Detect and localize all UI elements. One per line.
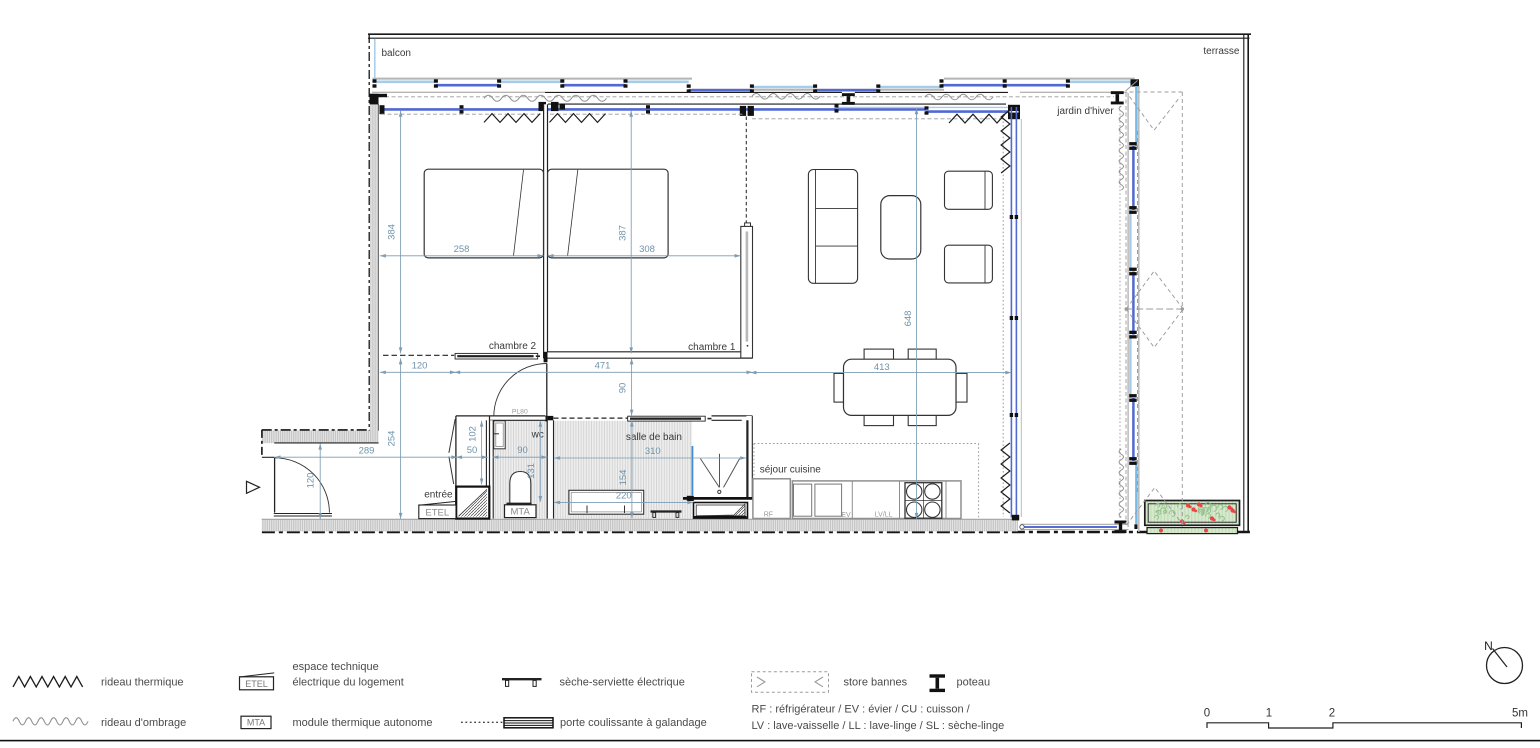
svg-text:131: 131 — [526, 463, 537, 479]
svg-text:chambre 2: chambre 2 — [489, 341, 537, 352]
svg-text:413: 413 — [874, 362, 890, 373]
svg-text:384: 384 — [387, 224, 398, 240]
svg-text:0: 0 — [1204, 708, 1210, 720]
svg-text:258: 258 — [454, 244, 470, 255]
svg-text:648: 648 — [903, 311, 914, 327]
svg-text:254: 254 — [387, 431, 398, 447]
svg-text:MTA: MTA — [511, 507, 531, 518]
svg-text:102: 102 — [468, 426, 479, 442]
svg-text:terrasse: terrasse — [1203, 46, 1240, 57]
svg-text:5m: 5m — [1512, 708, 1528, 720]
svg-text:120: 120 — [412, 361, 428, 372]
svg-text:90: 90 — [617, 383, 628, 394]
svg-text:RF : réfrigérateur / EV : évie: RF : réfrigérateur / EV : évier / CU : c… — [752, 704, 971, 716]
svg-text:PL80: PL80 — [512, 409, 528, 416]
svg-text:ETEL: ETEL — [425, 508, 449, 519]
svg-text:wc: wc — [531, 430, 544, 441]
svg-text:289: 289 — [359, 445, 375, 456]
svg-text:154: 154 — [618, 470, 629, 486]
svg-text:électrique du logement: électrique du logement — [293, 677, 404, 689]
svg-text:rideau d'ombrage: rideau d'ombrage — [101, 717, 186, 729]
svg-text:séjour cuisine: séjour cuisine — [760, 465, 822, 476]
svg-text:120: 120 — [306, 473, 317, 489]
svg-text:LV/LL: LV/LL — [875, 511, 893, 518]
svg-text:MTA: MTA — [247, 718, 265, 728]
svg-text:balcon: balcon — [382, 48, 411, 59]
svg-text:salle de bain: salle de bain — [626, 432, 682, 443]
svg-text:sèche-serviette électrique: sèche-serviette électrique — [560, 677, 685, 689]
svg-text:rideau thermique: rideau thermique — [101, 677, 184, 689]
svg-text:entrée: entrée — [424, 489, 453, 500]
svg-text:1: 1 — [1266, 708, 1272, 720]
svg-text:ETEL: ETEL — [245, 679, 268, 689]
svg-text:2: 2 — [1329, 708, 1335, 720]
svg-text:chambre 1: chambre 1 — [688, 342, 736, 353]
svg-text:220: 220 — [616, 490, 632, 501]
svg-text:308: 308 — [639, 244, 655, 255]
svg-text:module thermique autonome: module thermique autonome — [293, 717, 433, 729]
svg-text:90: 90 — [517, 445, 528, 456]
svg-text:50: 50 — [467, 445, 478, 456]
svg-text:LV : lave-vaisselle / LL : lav: LV : lave-vaisselle / LL : lave-linge / … — [752, 720, 1005, 732]
svg-text:jardin d'hiver: jardin d'hiver — [1056, 106, 1114, 117]
svg-text:310: 310 — [645, 446, 661, 457]
svg-text:store bannes: store bannes — [844, 677, 908, 689]
svg-text:387: 387 — [617, 225, 628, 241]
svg-text:471: 471 — [595, 361, 611, 372]
svg-text:EV: EV — [841, 512, 851, 519]
svg-text:poteau: poteau — [957, 677, 991, 689]
svg-text:N: N — [1484, 639, 1493, 653]
svg-text:RF: RF — [764, 511, 773, 518]
svg-text:espace technique: espace technique — [293, 661, 379, 673]
svg-text:porte coulissante à galandage: porte coulissante à galandage — [560, 717, 707, 729]
